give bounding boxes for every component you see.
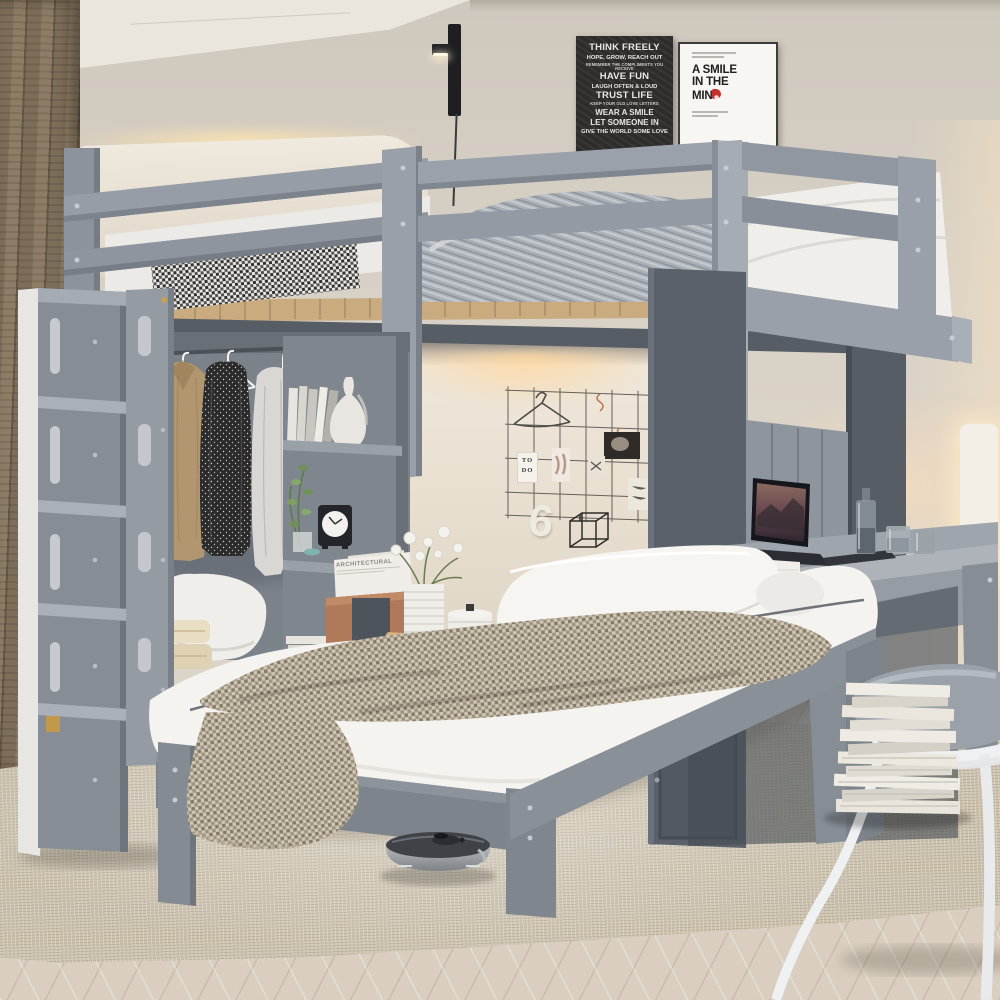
- trinket-dish: [304, 549, 320, 556]
- desk-clock: [318, 505, 352, 549]
- bed-pillow-small: [756, 572, 824, 616]
- robot-vacuum: [380, 832, 496, 886]
- bedroom-loft-bed-photo: THINK FREELY HOPE, GROW, REACH OUT REMEM…: [0, 0, 1000, 1000]
- storage-tower: [18, 288, 128, 856]
- furniture-scene: [0, 0, 1000, 1000]
- hinge: [46, 716, 60, 732]
